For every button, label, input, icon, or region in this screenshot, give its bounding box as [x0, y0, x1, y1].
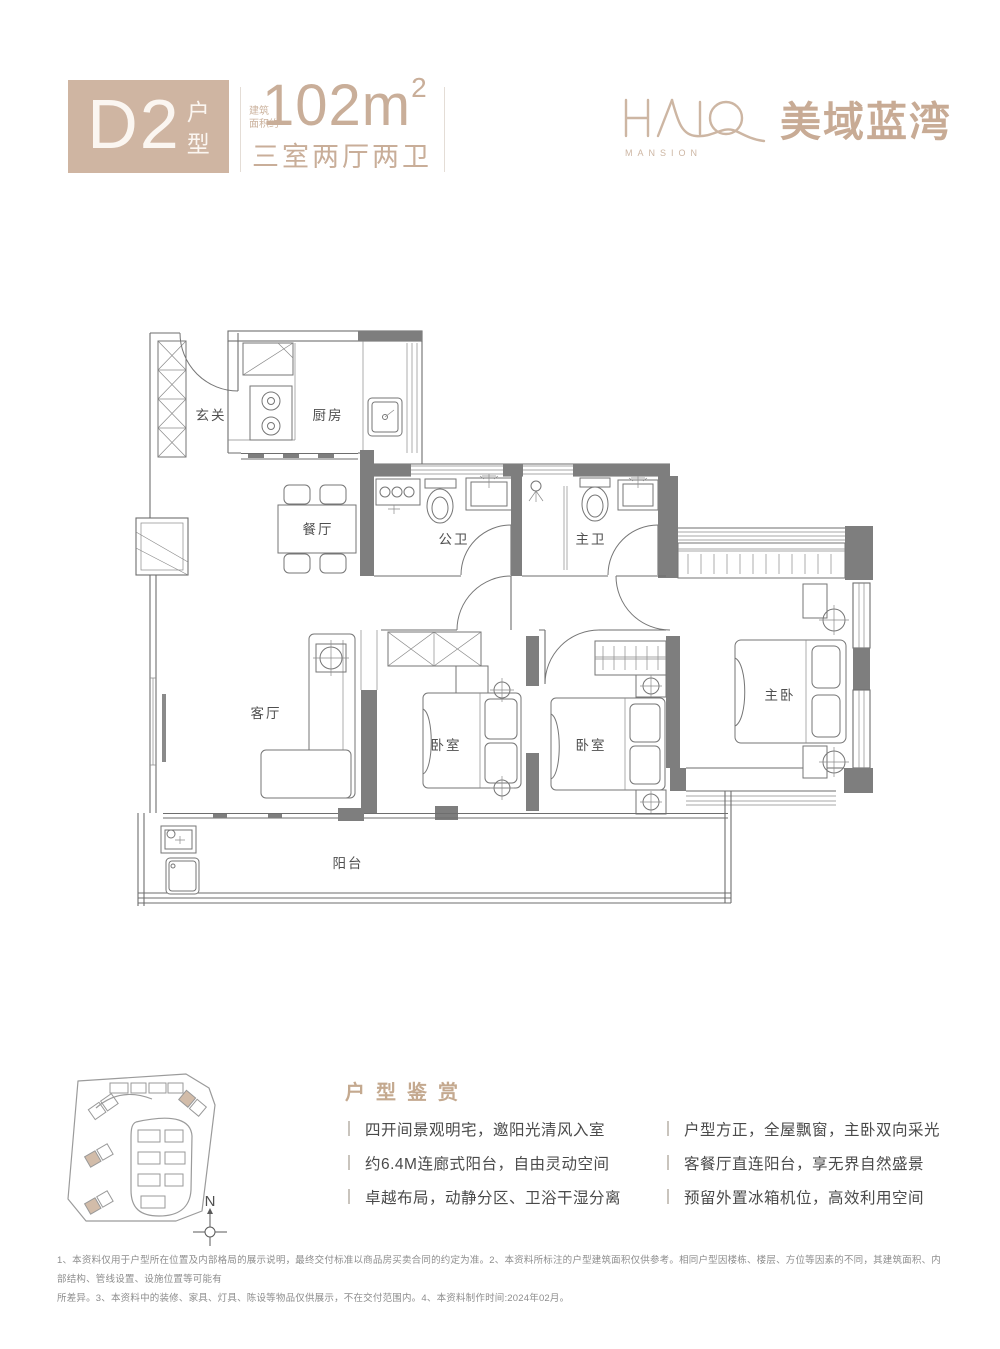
bedroom2-door-arc: [545, 630, 599, 684]
header-divider-right: [444, 87, 445, 172]
master-suite-door-arc: [616, 576, 670, 630]
master-window-right-upper: [853, 583, 870, 648]
wardrobe: [388, 632, 481, 666]
compass-north-label: N: [205, 1193, 216, 1210]
wall-spine: [360, 450, 374, 576]
feature-bullet-bar: [348, 1121, 350, 1136]
disclaimer: 1、本资料仅用于户型所在位置及内部格局的展示说明，最终交付标准以商品房买卖合同的…: [57, 1251, 947, 1308]
bath-divider-wall: [511, 476, 522, 576]
feature-bullet-bar: [667, 1155, 669, 1170]
center-buildings: [138, 1130, 185, 1208]
bath-block: [373, 464, 670, 476]
entry-door-arc: [180, 333, 238, 391]
feature-item: 预留外置冰箱机位，高效利用空间: [667, 1186, 940, 1207]
master-bay-window-bottom: [686, 796, 836, 805]
master-wardrobe: [678, 543, 845, 578]
toilet: [427, 489, 453, 523]
vanity-counter: [376, 479, 420, 505]
compass: N: [186, 1192, 234, 1250]
balcony-label: 阳台: [333, 856, 364, 871]
brand-logo: MANSION 美域蓝湾: [612, 84, 952, 184]
washing-machine: [166, 858, 199, 894]
building-cluster: [85, 1191, 114, 1214]
feature-text: 客餐厅直连阳台，享无界自然盛景: [684, 1152, 924, 1174]
feature-item: 客餐厅直连阳台，享无界自然盛景: [667, 1152, 940, 1173]
bedroom1-door-arc: [457, 576, 511, 630]
dining-room: 餐厅: [278, 485, 356, 573]
desk: [456, 666, 488, 696]
feature-item: 约6.4M连廊式阳台，自由灵动空间: [348, 1152, 621, 1173]
layout-description: 三室两厅两卫: [252, 135, 432, 174]
disclaimer-line2: 所差异。3、本资料中的装修、家具、灯具、陈设等物品仅供展示，不在交付范围内。4、…: [57, 1289, 947, 1308]
balcony-railing: [138, 893, 731, 903]
feature-text: 卓越布局，动静分区、卫浴干湿分离: [365, 1186, 621, 1208]
unit-type-badge: D2 户 型: [68, 80, 229, 173]
toilet-tank: [425, 479, 456, 488]
sofa-chaise: [261, 750, 351, 798]
bedroom2-label: 卧室: [576, 737, 607, 753]
unit-suffix-top: 户: [187, 97, 210, 128]
feature-item: 户型方正，全屋飘窗，主卧双向采光: [667, 1118, 940, 1139]
entry-area: 玄关: [150, 333, 238, 518]
halo-logotype-strokes: [626, 100, 764, 141]
left-bay-window: [136, 518, 188, 813]
master-bedroom-label: 主卧: [765, 688, 796, 703]
feature-text: 户型方正，全屋飘窗，主卧双向采光: [684, 1118, 940, 1140]
kitchen-window: [407, 343, 417, 453]
living-room: 客厅: [162, 634, 355, 798]
living-side-window: [150, 678, 156, 765]
area-value: 102m2: [262, 72, 428, 139]
bedroom1-label: 卧室: [431, 737, 462, 753]
master-window-right-lower: [853, 690, 870, 768]
unit-code: D2: [87, 89, 180, 159]
logo-chinese-name: 美域蓝湾: [780, 99, 952, 145]
features-left-column: 四开间景观明宅，邀阳光清风入室 约6.4M连廊式阳台，自由灵动空间 卓越布局，动…: [348, 1118, 621, 1207]
dining-label: 餐厅: [303, 522, 334, 537]
kitchen-label: 厨房: [313, 408, 344, 423]
feature-item: 卓越布局，动静分区、卫浴干湿分离: [348, 1186, 621, 1207]
feature-text: 预留外置冰箱机位，高效利用空间: [684, 1186, 924, 1208]
public-bathroom: 公卫: [374, 474, 512, 576]
feature-text: 四开间景观明宅，邀阳光清风入室: [365, 1118, 605, 1140]
bath-windows: [411, 466, 573, 474]
toilet: [582, 487, 608, 521]
area-superscript: 2: [411, 72, 428, 103]
shower-head: [531, 481, 541, 491]
feature-bullet-bar: [667, 1121, 669, 1136]
wardrobe: [595, 641, 666, 675]
feature-bullet-bar: [348, 1155, 350, 1170]
feature-text: 约6.4M连廊式阳台，自由灵动空间: [365, 1152, 609, 1174]
nightstand: [803, 584, 827, 618]
area-number: 102m: [262, 73, 411, 138]
feature-bullet-bar: [348, 1189, 350, 1204]
disclaimer-line1: 1、本资料仅用于户型所在位置及内部格局的展示说明，最终交付标准以商品房买卖合同的…: [57, 1251, 947, 1289]
features-title: 户型鉴赏: [345, 1076, 469, 1105]
living-label: 客厅: [251, 705, 282, 721]
master-suite: 主卧: [666, 513, 873, 805]
master-bath-label: 主卫: [576, 532, 607, 547]
corridor: [616, 576, 670, 630]
building-cluster: [179, 1090, 207, 1116]
master-bath-door-arc: [608, 525, 658, 575]
stove: [250, 386, 292, 440]
kitchen: 厨房: [228, 331, 422, 464]
public-bath-label: 公卫: [439, 532, 470, 547]
feature-bullet-bar: [667, 1189, 669, 1204]
bedroom-2: 卧室: [526, 630, 666, 814]
logo-mansion-text: MANSION: [625, 148, 702, 158]
floor-plan: 玄关 厨房 餐厅: [128, 318, 973, 943]
shower-glass: [564, 486, 567, 570]
unit-suffix: 户 型: [187, 97, 210, 159]
features-right-column: 户型方正，全屋飘窗，主卧双向采光 客餐厅直连阳台，享无界自然盛景 预留外置冰箱机…: [667, 1118, 940, 1207]
tv: [162, 694, 166, 762]
unit-suffix-bottom: 型: [187, 129, 210, 160]
entry-label: 玄关: [196, 407, 227, 423]
bedroom-1: 卧室: [361, 576, 521, 820]
floorplan-brochure-page: D2 户 型 建筑 面积约 102m2 三室两厅两卫 MANSION 美域蓝湾: [0, 0, 1000, 1349]
toilet-tank: [580, 478, 610, 487]
header-divider-left: [240, 87, 241, 172]
building-cluster: [85, 1144, 114, 1167]
feature-item: 四开间景观明宅，邀阳光清风入室: [348, 1118, 621, 1139]
master-bathroom: 主卫: [522, 476, 658, 576]
